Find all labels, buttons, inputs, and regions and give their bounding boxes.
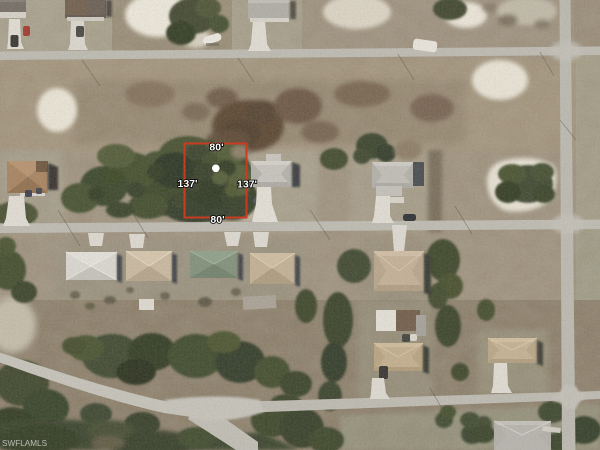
svg-text:80': 80'	[210, 214, 224, 226]
svg-text:80': 80'	[209, 142, 223, 154]
svg-text:137': 137'	[177, 178, 197, 190]
svg-text:SWFLAMLS: SWFLAMLS	[2, 439, 48, 448]
svg-text:137': 137'	[237, 179, 257, 191]
